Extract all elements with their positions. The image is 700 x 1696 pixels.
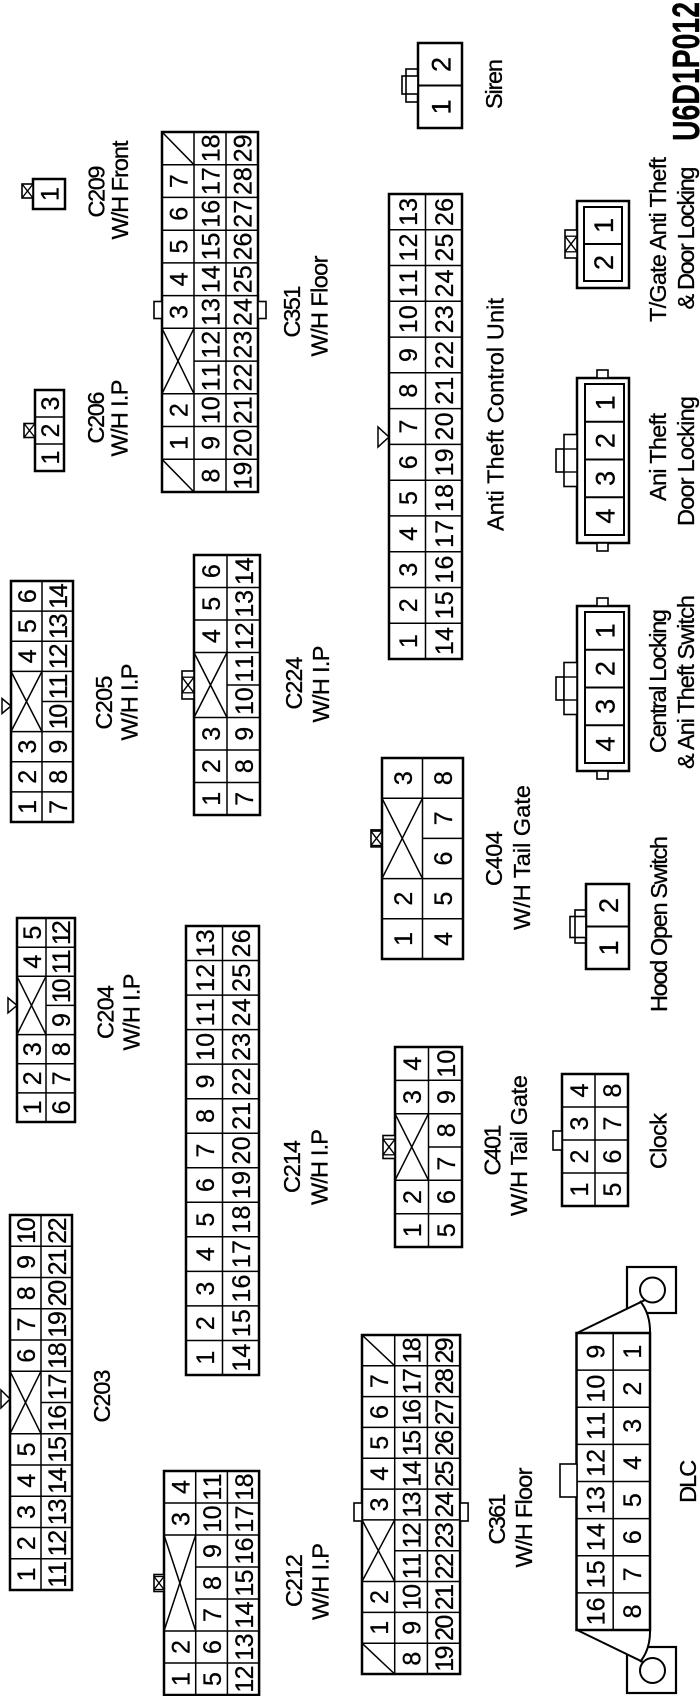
svg-text:C361: C361 (484, 1494, 510, 1545)
svg-text:12: 12 (198, 331, 226, 359)
svg-text:2: 2 (390, 892, 418, 906)
svg-text:15: 15 (44, 1436, 72, 1463)
svg-text:23: 23 (228, 1033, 256, 1061)
svg-text:W/H Tail Gate: W/H Tail Gate (509, 785, 535, 930)
svg-text:16: 16 (44, 1405, 72, 1432)
svg-text:2: 2 (13, 1536, 41, 1550)
svg-text:19: 19 (230, 462, 258, 490)
svg-text:22: 22 (431, 341, 459, 369)
svg-text:7: 7 (45, 800, 73, 814)
svg-text:1: 1 (566, 1183, 594, 1197)
svg-text:18: 18 (431, 484, 459, 512)
svg-text:4: 4 (19, 955, 47, 969)
svg-text:Door Locking: Door Locking (673, 396, 699, 526)
svg-text:8: 8 (399, 1652, 427, 1666)
svg-text:6: 6 (199, 1640, 227, 1654)
svg-text:7: 7 (199, 1608, 227, 1622)
svg-text:Hood Open Switch: Hood Open Switch (646, 836, 672, 1012)
svg-text:5: 5 (433, 1223, 461, 1237)
svg-text:10: 10 (395, 305, 423, 333)
svg-text:C205: C205 (91, 676, 117, 730)
svg-text:4: 4 (13, 1474, 41, 1488)
svg-text:23: 23 (230, 331, 258, 359)
svg-text:2: 2 (591, 661, 621, 676)
svg-text:Clock: Clock (646, 1113, 672, 1169)
svg-text:23: 23 (431, 1522, 459, 1548)
svg-text:10: 10 (198, 396, 226, 424)
svg-text:C209: C209 (84, 166, 110, 218)
svg-text:5: 5 (192, 1213, 220, 1227)
svg-text:26: 26 (228, 929, 256, 957)
svg-text:3: 3 (591, 699, 621, 714)
svg-text:12: 12 (48, 920, 76, 945)
svg-text:10: 10 (48, 979, 76, 1004)
svg-text:3: 3 (366, 1498, 394, 1512)
svg-text:6: 6 (48, 1100, 76, 1114)
svg-text:13: 13 (395, 198, 423, 226)
svg-text:11: 11 (199, 1473, 227, 1500)
svg-text:17: 17 (44, 1374, 72, 1401)
svg-text:C224: C224 (281, 657, 307, 710)
svg-text:2: 2 (192, 1316, 220, 1330)
svg-text:5: 5 (198, 597, 226, 611)
svg-text:1: 1 (37, 187, 65, 201)
svg-text:5: 5 (13, 1442, 41, 1456)
svg-text:18: 18 (198, 134, 226, 162)
svg-text:C206: C206 (83, 392, 109, 444)
svg-text:5: 5 (19, 926, 47, 940)
svg-text:4: 4 (198, 629, 226, 643)
svg-text:1: 1 (167, 1672, 195, 1686)
svg-text:1: 1 (13, 1567, 41, 1581)
svg-text:4: 4 (166, 272, 194, 286)
svg-text:1: 1 (399, 1223, 427, 1237)
svg-text:1: 1 (395, 634, 423, 648)
svg-text:W/H Floor: W/H Floor (511, 1467, 537, 1567)
svg-text:9: 9 (192, 1074, 220, 1088)
svg-text:6: 6 (13, 1349, 41, 1363)
svg-text:5: 5 (599, 1183, 627, 1197)
svg-text:2: 2 (427, 57, 457, 72)
svg-text:24: 24 (228, 998, 256, 1026)
svg-text:5: 5 (199, 1672, 227, 1686)
svg-text:3: 3 (192, 1282, 220, 1296)
svg-text:8: 8 (13, 1286, 41, 1300)
svg-text:13: 13 (231, 1633, 259, 1660)
svg-text:C401: C401 (480, 1125, 506, 1176)
svg-text:1: 1 (37, 451, 65, 465)
svg-text:8: 8 (192, 1109, 220, 1123)
svg-text:3: 3 (19, 1042, 47, 1056)
svg-text:24: 24 (431, 269, 459, 297)
svg-text:11: 11 (48, 949, 76, 974)
svg-text:6: 6 (166, 207, 194, 221)
svg-text:14: 14 (431, 627, 459, 655)
svg-text:8: 8 (231, 759, 259, 773)
svg-text:12: 12 (395, 234, 423, 262)
svg-text:14: 14 (45, 583, 73, 609)
svg-text:19: 19 (44, 1311, 72, 1338)
svg-text:10: 10 (13, 1217, 41, 1244)
svg-text:6: 6 (192, 1178, 220, 1192)
svg-text:C203: C203 (89, 1370, 115, 1423)
svg-text:15: 15 (399, 1430, 427, 1456)
svg-text:9: 9 (399, 1621, 427, 1635)
svg-text:16: 16 (431, 556, 459, 584)
svg-text:1: 1 (390, 932, 418, 946)
svg-text:3: 3 (395, 563, 423, 577)
svg-text:14: 14 (399, 1461, 427, 1487)
svg-text:9: 9 (433, 1090, 461, 1104)
svg-text:2: 2 (591, 433, 621, 448)
svg-text:15: 15 (431, 591, 459, 619)
svg-text:1: 1 (366, 1621, 394, 1635)
svg-text:W/H I.P: W/H I.P (308, 646, 334, 723)
svg-text:25: 25 (228, 964, 256, 992)
svg-text:9: 9 (13, 1255, 41, 1269)
svg-text:U6D1P012: U6D1P012 (666, 2, 700, 141)
svg-text:5: 5 (619, 1493, 647, 1507)
svg-text:8: 8 (619, 1604, 647, 1618)
svg-text:17: 17 (431, 520, 459, 548)
svg-text:W/H I.P: W/H I.P (307, 1129, 333, 1205)
svg-text:3: 3 (166, 305, 194, 319)
svg-text:15: 15 (198, 233, 226, 261)
svg-text:7: 7 (433, 1157, 461, 1171)
svg-text:19: 19 (431, 448, 459, 476)
svg-text:16: 16 (582, 1597, 610, 1625)
svg-text:13: 13 (231, 590, 259, 618)
svg-text:& Ani Theft Switch: & Ani Theft Switch (673, 595, 699, 769)
svg-text:3: 3 (390, 771, 418, 785)
svg-text:6: 6 (433, 1190, 461, 1204)
svg-text:20: 20 (431, 1615, 459, 1641)
svg-text:C351: C351 (279, 286, 305, 338)
svg-text:25: 25 (230, 265, 258, 293)
svg-text:20: 20 (230, 429, 258, 457)
svg-text:C204: C204 (93, 985, 119, 1039)
svg-text:11: 11 (192, 998, 220, 1026)
svg-text:21: 21 (44, 1249, 72, 1276)
svg-text:4: 4 (566, 1083, 594, 1097)
svg-text:1: 1 (166, 436, 194, 450)
svg-text:4: 4 (167, 1480, 195, 1494)
svg-text:6: 6 (366, 1405, 394, 1419)
svg-text:11: 11 (45, 674, 73, 700)
svg-text:7: 7 (430, 811, 458, 825)
svg-text:26: 26 (431, 198, 459, 226)
svg-text:2: 2 (166, 403, 194, 417)
svg-text:7: 7 (13, 1317, 41, 1331)
svg-text:11: 11 (44, 1561, 72, 1588)
svg-text:4: 4 (430, 932, 458, 946)
svg-text:3: 3 (14, 740, 42, 754)
svg-text:W/H I.P: W/H I.P (308, 1543, 334, 1620)
svg-text:12: 12 (582, 1449, 610, 1477)
svg-text:3: 3 (399, 1090, 427, 1104)
svg-text:C404: C404 (481, 831, 507, 886)
svg-text:22: 22 (44, 1217, 72, 1244)
svg-text:9: 9 (199, 1544, 227, 1558)
svg-text:3: 3 (198, 727, 226, 741)
svg-text:12: 12 (231, 622, 259, 650)
svg-text:4: 4 (619, 1456, 647, 1470)
svg-text:C214: C214 (279, 1140, 305, 1193)
svg-text:2: 2 (37, 424, 65, 438)
svg-text:9: 9 (48, 1013, 76, 1027)
svg-text:6: 6 (619, 1530, 647, 1544)
svg-text:20: 20 (431, 413, 459, 441)
svg-text:13: 13 (198, 298, 226, 326)
svg-text:12: 12 (192, 964, 220, 992)
svg-text:5: 5 (395, 491, 423, 505)
svg-text:5: 5 (430, 892, 458, 906)
svg-text:1: 1 (198, 792, 226, 806)
svg-text:21: 21 (228, 1102, 256, 1130)
svg-text:20: 20 (44, 1280, 72, 1307)
svg-text:4: 4 (366, 1467, 394, 1481)
svg-text:16: 16 (198, 200, 226, 228)
svg-text:25: 25 (431, 1461, 459, 1487)
svg-text:2: 2 (19, 1071, 47, 1085)
svg-text:8: 8 (199, 1576, 227, 1590)
svg-text:1: 1 (591, 395, 621, 410)
svg-text:14: 14 (198, 265, 226, 293)
svg-text:14: 14 (228, 1344, 256, 1372)
svg-text:10: 10 (45, 704, 73, 730)
svg-text:15: 15 (582, 1560, 610, 1588)
svg-text:4: 4 (591, 509, 621, 524)
svg-text:9: 9 (231, 727, 259, 741)
svg-text:1: 1 (19, 1100, 47, 1114)
svg-text:1: 1 (14, 800, 42, 814)
svg-text:28: 28 (230, 167, 258, 195)
svg-text:3: 3 (566, 1117, 594, 1131)
svg-text:2: 2 (366, 1590, 394, 1604)
svg-text:11: 11 (395, 269, 423, 297)
svg-text:10: 10 (399, 1584, 427, 1610)
svg-text:21: 21 (431, 377, 459, 405)
svg-text:W/H I.P: W/H I.P (107, 380, 133, 457)
svg-text:12: 12 (44, 1530, 72, 1557)
svg-text:9: 9 (582, 1345, 610, 1359)
svg-text:22: 22 (431, 1553, 459, 1579)
svg-text:6: 6 (14, 589, 42, 603)
svg-text:2: 2 (399, 1190, 427, 1204)
svg-text:5: 5 (14, 619, 42, 633)
svg-text:10: 10 (433, 1050, 461, 1078)
svg-text:17: 17 (231, 1505, 259, 1532)
svg-text:17: 17 (198, 167, 226, 195)
svg-text:1: 1 (589, 218, 619, 233)
svg-text:16: 16 (231, 1537, 259, 1564)
svg-text:28: 28 (431, 1368, 459, 1394)
svg-text:7: 7 (366, 1374, 394, 1388)
svg-text:2: 2 (395, 598, 423, 612)
svg-text:3: 3 (167, 1512, 195, 1526)
svg-text:24: 24 (230, 298, 258, 326)
svg-text:5: 5 (366, 1436, 394, 1450)
svg-text:11: 11 (399, 1553, 427, 1579)
svg-text:8: 8 (430, 771, 458, 785)
svg-text:4: 4 (399, 1057, 427, 1071)
svg-text:Siren: Siren (481, 59, 507, 109)
svg-text:11: 11 (231, 655, 259, 683)
svg-text:12: 12 (399, 1522, 427, 1548)
svg-text:29: 29 (431, 1337, 459, 1363)
svg-text:17: 17 (228, 1240, 256, 1268)
svg-text:19: 19 (228, 1171, 256, 1199)
svg-text:5: 5 (166, 240, 194, 254)
svg-text:DLC: DLC (675, 1460, 700, 1503)
svg-text:18: 18 (44, 1342, 72, 1369)
svg-text:Anti Theft Control Unit: Anti Theft Control Unit (483, 298, 509, 531)
svg-text:8: 8 (395, 384, 423, 398)
svg-text:14: 14 (44, 1467, 72, 1494)
svg-text:26: 26 (230, 233, 258, 261)
svg-text:3: 3 (37, 397, 65, 411)
svg-text:4: 4 (192, 1247, 220, 1261)
svg-text:11: 11 (198, 363, 226, 391)
svg-text:W/H I.P: W/H I.P (117, 664, 143, 741)
svg-text:W/H I.P: W/H I.P (119, 974, 145, 1051)
svg-text:8: 8 (198, 469, 226, 483)
svg-text:1: 1 (594, 940, 624, 955)
svg-text:13: 13 (399, 1491, 427, 1517)
svg-text:& Door Locking: & Door Locking (673, 167, 699, 310)
svg-text:10: 10 (192, 1033, 220, 1061)
svg-text:13: 13 (582, 1486, 610, 1514)
svg-text:18: 18 (231, 1473, 259, 1500)
svg-text:9: 9 (395, 348, 423, 362)
svg-text:2: 2 (167, 1640, 195, 1654)
svg-text:9: 9 (45, 740, 73, 754)
svg-text:4: 4 (395, 527, 423, 541)
svg-text:7: 7 (192, 1144, 220, 1158)
svg-text:4: 4 (591, 737, 621, 752)
svg-text:C212: C212 (281, 1554, 307, 1607)
svg-text:16: 16 (228, 1275, 256, 1303)
svg-text:1: 1 (427, 99, 457, 114)
svg-text:8: 8 (45, 770, 73, 784)
svg-text:7: 7 (166, 174, 194, 188)
svg-text:12: 12 (231, 1665, 259, 1692)
svg-text:W/H Tail Gate: W/H Tail Gate (506, 1075, 532, 1216)
svg-text:8: 8 (599, 1084, 627, 1098)
svg-text:2: 2 (566, 1150, 594, 1164)
svg-text:2: 2 (619, 1382, 647, 1396)
svg-text:8: 8 (433, 1123, 461, 1137)
svg-text:10: 10 (582, 1375, 610, 1403)
svg-text:21: 21 (230, 396, 258, 424)
svg-text:13: 13 (192, 929, 220, 957)
svg-text:15: 15 (228, 1309, 256, 1337)
svg-text:2: 2 (594, 898, 624, 913)
svg-text:27: 27 (230, 200, 258, 228)
svg-text:6: 6 (430, 852, 458, 866)
svg-text:7: 7 (48, 1071, 76, 1085)
svg-text:2: 2 (14, 770, 42, 784)
svg-text:3: 3 (619, 1419, 647, 1433)
svg-text:11: 11 (582, 1412, 610, 1440)
svg-text:23: 23 (431, 305, 459, 333)
svg-text:25: 25 (431, 234, 459, 262)
svg-text:8: 8 (48, 1042, 76, 1056)
svg-text:7: 7 (395, 420, 423, 434)
svg-text:6: 6 (198, 564, 226, 578)
svg-text:Ani Theft: Ani Theft (645, 413, 671, 501)
svg-text:7: 7 (619, 1567, 647, 1581)
svg-text:18: 18 (228, 1206, 256, 1234)
svg-text:24: 24 (431, 1491, 459, 1517)
svg-text:2: 2 (589, 255, 619, 270)
svg-text:9: 9 (198, 436, 226, 450)
svg-text:1: 1 (192, 1351, 220, 1365)
svg-text:20: 20 (228, 1137, 256, 1165)
svg-text:6: 6 (599, 1150, 627, 1164)
svg-text:21: 21 (431, 1584, 459, 1610)
svg-text:13: 13 (44, 1499, 72, 1526)
svg-text:27: 27 (431, 1399, 459, 1425)
svg-text:14: 14 (231, 557, 259, 585)
svg-text:22: 22 (228, 1067, 256, 1095)
svg-text:22: 22 (230, 363, 258, 391)
svg-text:7: 7 (599, 1117, 627, 1131)
svg-text:2: 2 (198, 759, 226, 773)
svg-text:17: 17 (399, 1368, 427, 1394)
svg-text:7: 7 (231, 792, 259, 806)
svg-text:1: 1 (591, 623, 621, 638)
svg-text:10: 10 (199, 1505, 227, 1532)
svg-text:15: 15 (231, 1569, 259, 1596)
svg-text:29: 29 (230, 134, 258, 162)
svg-text:13: 13 (45, 613, 73, 639)
svg-text:26: 26 (431, 1430, 459, 1456)
svg-text:W/H Front: W/H Front (107, 140, 133, 239)
svg-text:3: 3 (13, 1505, 41, 1519)
svg-text:W/H Floor: W/H Floor (307, 255, 333, 356)
svg-text:1: 1 (619, 1345, 647, 1359)
svg-text:14: 14 (231, 1601, 259, 1628)
svg-text:12: 12 (45, 643, 73, 669)
svg-text:Central Locking: Central Locking (645, 609, 671, 753)
svg-text:19: 19 (431, 1646, 459, 1672)
svg-text:4: 4 (14, 649, 42, 663)
svg-text:16: 16 (399, 1399, 427, 1425)
svg-text:18: 18 (399, 1337, 427, 1363)
svg-text:10: 10 (231, 687, 259, 715)
svg-text:14: 14 (582, 1523, 610, 1551)
svg-text:6: 6 (395, 455, 423, 469)
svg-text:3: 3 (591, 471, 621, 486)
svg-text:T/Gate Anti Theft: T/Gate Anti Theft (645, 157, 671, 322)
